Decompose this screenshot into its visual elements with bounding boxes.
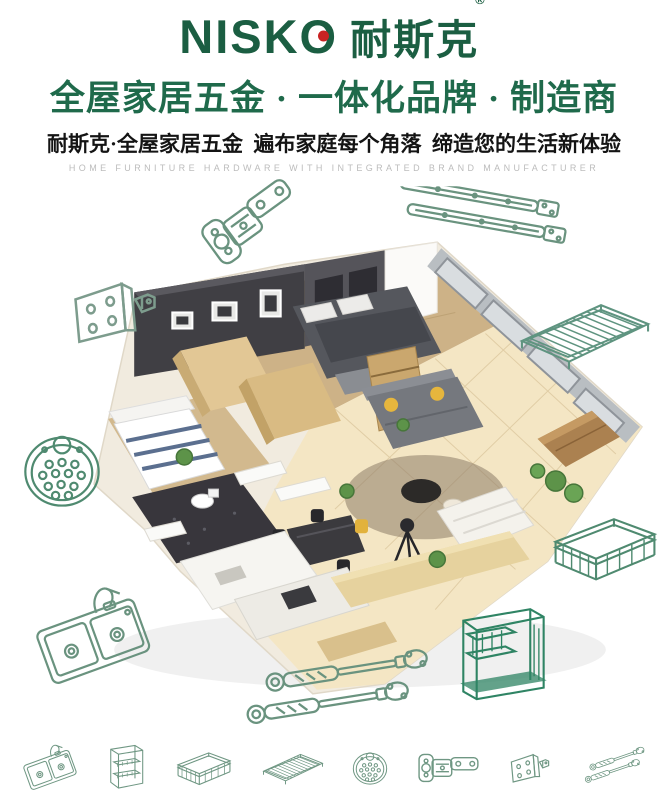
footer-pullout-basket-icon [103,741,149,793]
hinge-bracket-sketch-icon [62,270,168,350]
logo-cn-text: 耐斯克 [350,17,479,63]
footer-perforated-plate-icon [350,747,390,787]
perforated-plate-sketch-icon [16,424,108,512]
gas-struts-sketch-icon [236,648,438,738]
footer-bracket-icon [505,746,555,788]
footer-wire-shelf-icon [260,748,326,786]
drawer-slides-sketch-icon [392,184,570,256]
headline: 全屋家居五金 · 一体化品牌 · 制造商 [0,70,668,121]
logo-cn-wrap: 耐斯克® [350,6,489,66]
storage-rack-sketch-icon [448,592,558,702]
tagline-en: HOME FURNITURE HARDWARE WITH INTEGRATED … [0,163,668,173]
registered-mark: ® [475,0,485,7]
footer-drawer-basket-icon [173,746,235,788]
footer-hinge-icon [415,746,481,788]
logo-latin-text: NISKO [179,10,338,63]
logo-red-dot-icon [318,31,329,42]
subheadline: 耐斯克·全屋家居五金 遍布家庭每个角落 缔造您的生活新体验 [0,128,668,158]
poster: NISKO 耐斯克® 全屋家居五金 · 一体化品牌 · 制造商 耐斯克·全屋家居… [0,0,668,800]
wire-basket-sketch-icon [546,506,664,586]
footer-gas-struts-icon [577,741,653,793]
header: NISKO 耐斯克® 全屋家居五金 · 一体化品牌 · 制造商 耐斯克·全屋家居… [0,0,668,173]
brand-logo: NISKO 耐斯克® [0,8,668,64]
logo-latin-wrap: NISKO [179,9,338,64]
footer-product-row [0,736,668,798]
kitchen-sink-sketch-icon [24,580,154,690]
footer-sink-icon [18,741,78,793]
wire-shelf-sketch-icon [512,292,658,372]
